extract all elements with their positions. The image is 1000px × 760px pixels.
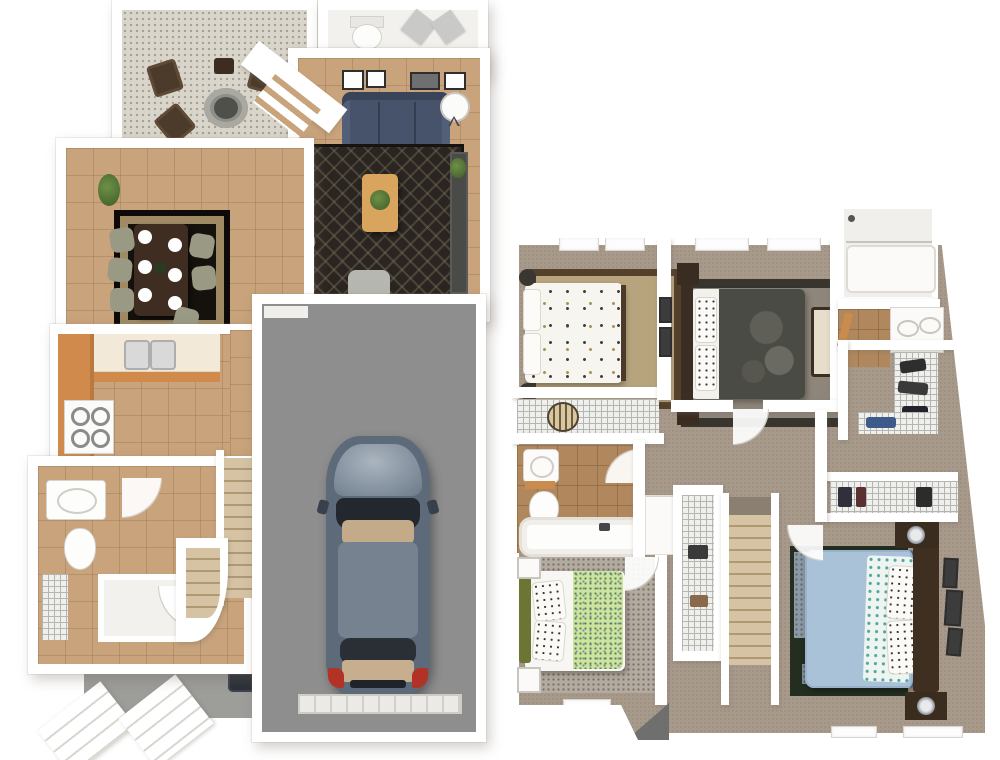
garage-door [298, 694, 462, 714]
lamp [917, 697, 935, 715]
window [559, 237, 599, 251]
range-stove [64, 400, 114, 454]
master-closet-shelf [830, 481, 958, 513]
bedroom-1 [671, 245, 839, 405]
sink-bowl [57, 488, 97, 514]
second-floor [505, 195, 1000, 745]
floorplan-render [0, 0, 1000, 760]
kitchen-sink [124, 340, 150, 370]
wall [838, 340, 848, 440]
place-setting [138, 288, 152, 302]
bathroom-2 [838, 203, 938, 303]
window [903, 726, 963, 738]
walk-in-closet [850, 350, 968, 445]
garage [252, 294, 486, 742]
wall [823, 472, 958, 481]
toilet [64, 528, 96, 570]
wall [815, 410, 827, 522]
bed-3-pillow [531, 579, 567, 622]
clothes [897, 380, 928, 395]
wall-art [942, 558, 959, 589]
upstairs-staircase [727, 493, 777, 705]
linen-closet [673, 485, 723, 661]
clothes [838, 487, 852, 507]
place-setting [138, 230, 152, 244]
dining-chair [188, 232, 216, 260]
clothes [899, 358, 926, 374]
stair-landing [729, 497, 771, 515]
car [326, 436, 430, 696]
wall [763, 400, 843, 412]
counter-wood-face [94, 372, 220, 382]
wall-art [659, 297, 672, 323]
round-basket [547, 402, 579, 432]
window [605, 237, 645, 251]
clothes [856, 487, 866, 507]
console-plant [450, 158, 466, 178]
wall [633, 440, 645, 558]
side-table [214, 58, 234, 74]
sofa-cushion-split [378, 102, 380, 148]
nightstand [895, 522, 939, 548]
stored-items [688, 545, 708, 559]
wall-art [342, 70, 364, 90]
shower-glass [846, 241, 932, 243]
burner [71, 429, 90, 448]
wall [671, 400, 733, 412]
nightstand [517, 667, 541, 693]
wall [838, 340, 968, 350]
burner [91, 407, 110, 426]
stored-items [690, 595, 708, 607]
entry-door-leaf [401, 9, 437, 45]
wall-art [659, 327, 672, 357]
dining-plant [98, 174, 120, 206]
car-mirror [316, 499, 329, 515]
table-lamp [519, 269, 536, 286]
entry-door-leaf [431, 9, 466, 44]
bedroom-2 [519, 245, 665, 390]
outdoor-chair [146, 58, 184, 98]
shower-tub [846, 245, 936, 293]
stair-wall [721, 493, 729, 705]
place-setting [168, 238, 182, 252]
wall-art [444, 72, 466, 90]
bedroom-2-closet-shelf [517, 399, 659, 433]
linen-wire-shelf [682, 495, 714, 651]
sink-bowl [919, 317, 941, 334]
car-dash-interior [342, 520, 414, 544]
armchair [348, 270, 390, 294]
place-setting [168, 268, 182, 282]
bed-1-headboard [681, 285, 693, 403]
door-arc [122, 478, 162, 518]
dining-chair [110, 288, 134, 312]
laundry-wire-shelf [42, 574, 68, 640]
car-taillight [412, 668, 428, 688]
window [695, 237, 749, 251]
bathtub [519, 517, 643, 557]
stair-run [729, 515, 771, 665]
car-hood [334, 444, 422, 496]
bed-1-pillow [695, 297, 717, 343]
clothes [916, 487, 932, 507]
nightstand [677, 263, 699, 285]
wall [512, 387, 664, 398]
window [563, 699, 611, 711]
first-floor [0, 0, 500, 760]
car-taillight [328, 668, 344, 688]
window [831, 726, 877, 738]
wall [655, 553, 667, 705]
wall-art [944, 589, 963, 626]
bed-2-pillow [523, 289, 541, 331]
vanity-wood-base [525, 481, 555, 489]
sofa-cushion-split [414, 102, 416, 148]
vanity-sink [46, 480, 106, 520]
kitchen-sink [150, 340, 176, 370]
bed-3-pillow [531, 620, 566, 663]
dining-chair [108, 226, 135, 253]
sofa [342, 92, 450, 150]
vanity-sink [523, 449, 559, 483]
garage-step [264, 306, 308, 318]
toilet [352, 24, 382, 50]
car-rear-deck [342, 660, 414, 682]
sink-bowl [897, 320, 919, 337]
bed-2-pillow [523, 333, 541, 375]
closet-wire-shelf [858, 412, 938, 434]
shower-head [848, 215, 855, 222]
centerpiece [154, 262, 167, 274]
tub-faucet [599, 523, 610, 531]
nightstand [905, 692, 947, 720]
hall-bathroom [517, 445, 639, 553]
car-bumper [350, 680, 406, 688]
wall-art [410, 72, 440, 90]
landing-steps [186, 548, 220, 618]
sink-bowl [530, 456, 554, 478]
clothes [866, 417, 896, 428]
nightstand [517, 557, 541, 579]
bed-3-runner [573, 571, 623, 669]
coffee-table-plant [370, 190, 390, 210]
wall-art [946, 627, 963, 656]
burner [71, 407, 90, 426]
car-mirror [426, 499, 439, 515]
round-side-table [440, 92, 470, 122]
dining-chair [107, 257, 133, 283]
wall [823, 513, 958, 522]
bed-1-blanket [719, 289, 805, 399]
lamp [907, 526, 925, 544]
window [767, 237, 821, 251]
wall-art [366, 70, 386, 88]
hall-white-cabinet [645, 495, 675, 555]
burner [91, 429, 110, 448]
bed-3-headboard [519, 577, 531, 663]
dining-chair [191, 265, 217, 291]
stair-wall [771, 493, 779, 705]
place-setting [138, 260, 152, 274]
master-headboard [913, 546, 939, 692]
bed-1-pillow [695, 345, 717, 391]
car-roof [338, 542, 418, 638]
fire-pit-bowl [214, 97, 238, 119]
bed-2-footboard [621, 285, 626, 381]
